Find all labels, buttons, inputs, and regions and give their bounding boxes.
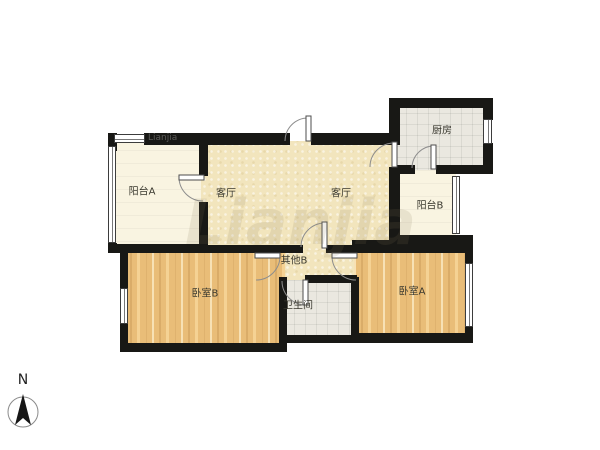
floor-plan: 阳台A 客厅 客厅 厨房 阳台B 其他B 卧室B 卫生间 卧室A Lianjia…	[0, 0, 600, 450]
door-arcs	[0, 0, 600, 450]
bedroom-a-door-leaf	[332, 253, 357, 258]
hall-door-leaf	[322, 222, 327, 248]
bedroom-a-label: 卧室A	[399, 283, 426, 298]
entry-door-arc	[285, 118, 308, 141]
other-b-label: 其他B	[281, 252, 308, 267]
balcony-a-door-leaf	[179, 175, 204, 180]
bathroom-label: 卫生间	[283, 297, 313, 312]
kitchen-label: 厨房	[432, 122, 452, 137]
bedroom-b-door-arc	[256, 256, 280, 280]
entry-door-leaf	[306, 116, 311, 141]
bedroom-a-door-arc	[332, 256, 356, 280]
compass-needle-icon	[15, 394, 31, 425]
balcony-b-label: 阳台B	[417, 197, 444, 212]
kitchen-door-arc	[370, 143, 394, 167]
kitchen-door-leaf	[392, 142, 397, 167]
balcony-a-door-arc	[179, 177, 203, 201]
living-room-label: 客厅	[331, 185, 351, 200]
compass-icon	[2, 386, 46, 430]
hall-door-arc	[301, 223, 325, 247]
balcony-a-label: 阳台A	[129, 183, 156, 198]
bedroom-b-door-leaf	[255, 253, 280, 258]
living-room-label: 客厅	[216, 185, 236, 200]
balcony-b-door-leaf	[431, 145, 436, 169]
compass: N	[2, 372, 46, 444]
bedroom-b-label: 卧室B	[192, 285, 219, 300]
